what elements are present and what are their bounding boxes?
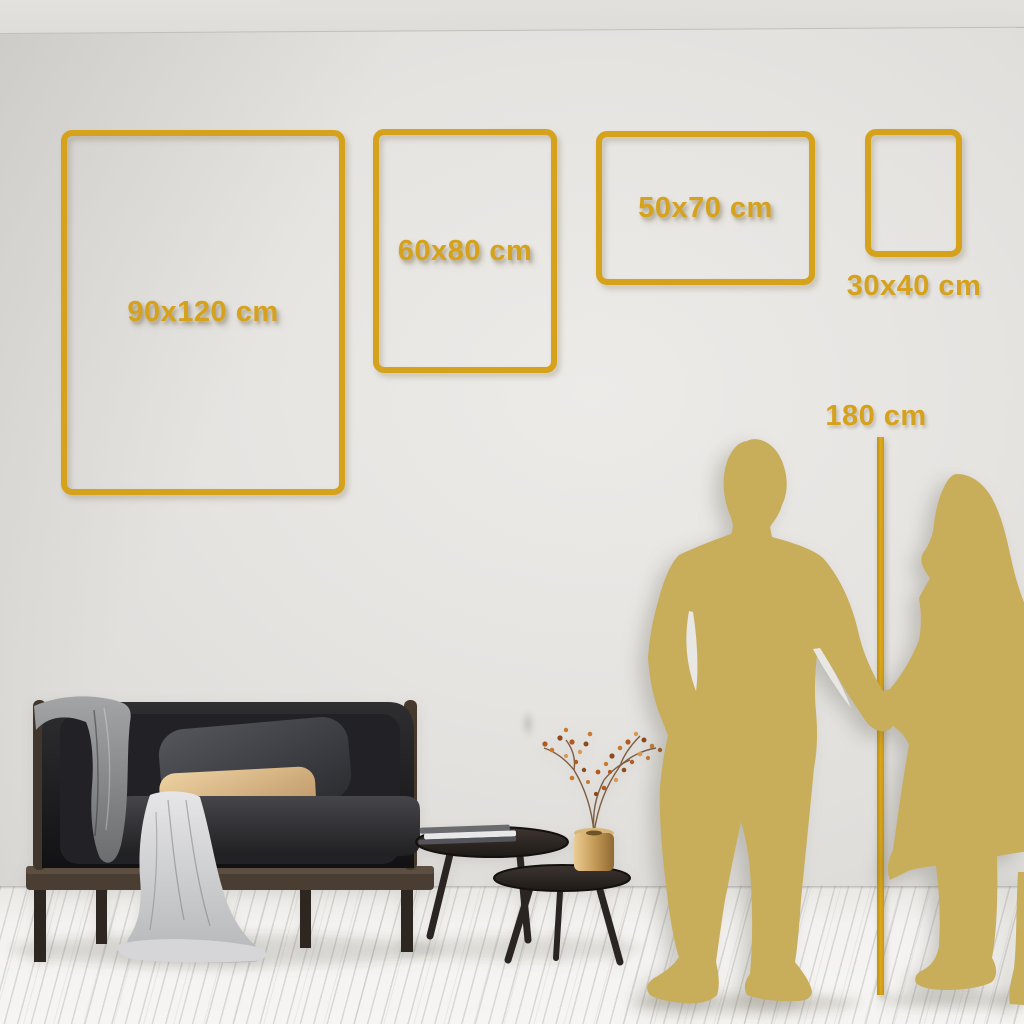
couple-silhouette (0, 0, 1024, 1024)
woman-shadow (880, 992, 1024, 1008)
woman-leg (915, 855, 997, 990)
room-scene: 90x120 cm 60x80 cm 50x70 cm 30x40 cm 180… (0, 0, 1024, 1024)
man-silhouette (647, 439, 895, 1003)
woman-edge-leg (1009, 872, 1024, 1006)
woman-silhouette (872, 474, 1024, 880)
